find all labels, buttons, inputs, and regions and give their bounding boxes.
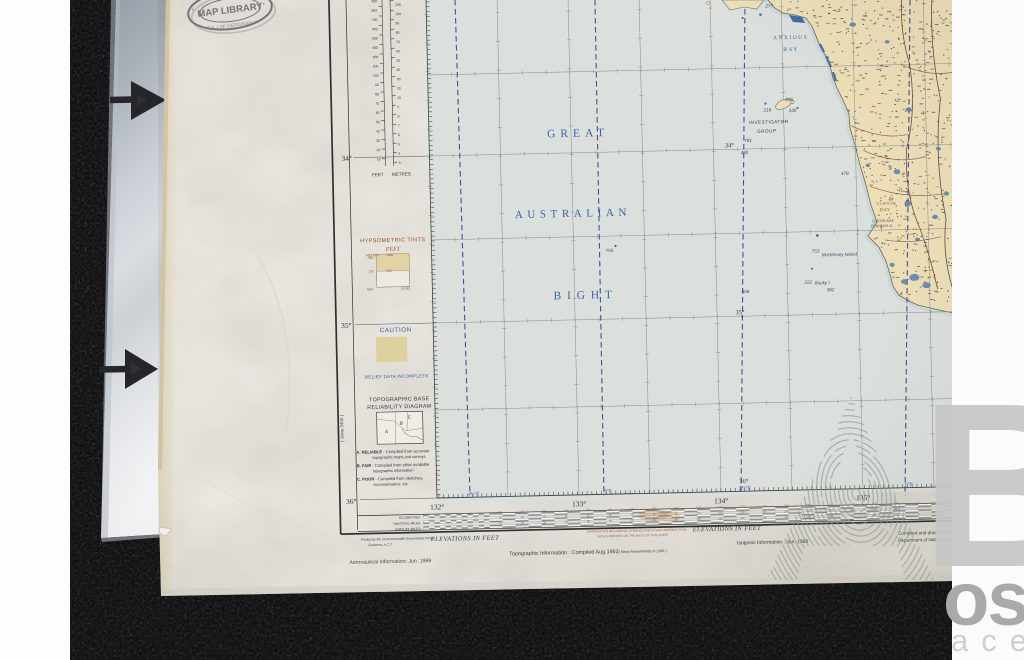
svg-text:ace: ace xyxy=(951,623,1024,658)
